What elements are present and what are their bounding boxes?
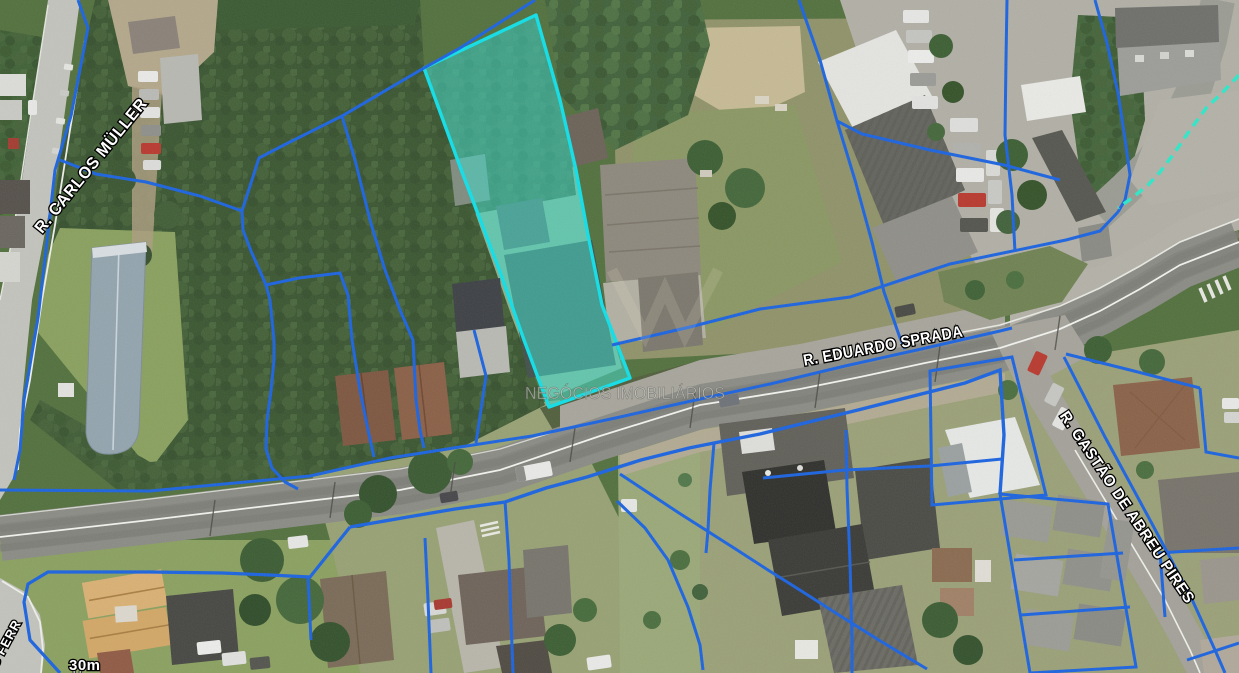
- svg-text:30m: 30m: [69, 657, 101, 673]
